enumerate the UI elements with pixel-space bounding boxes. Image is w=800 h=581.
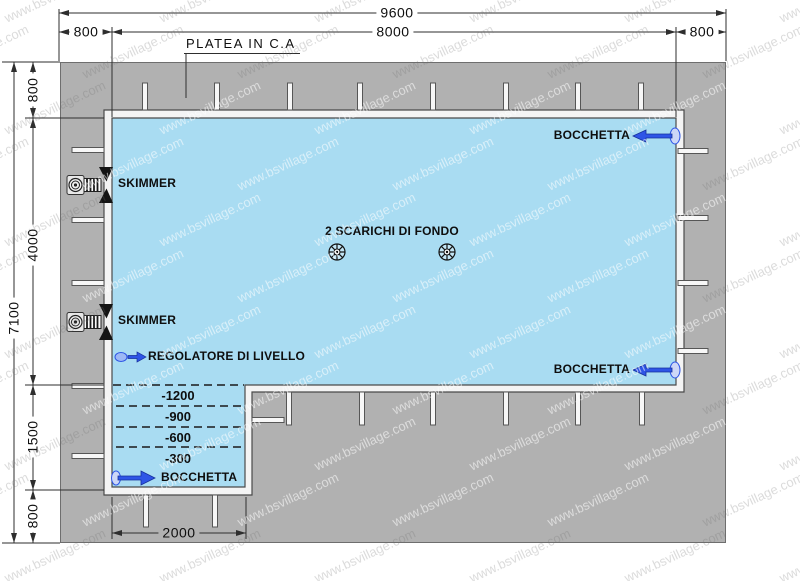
dim-total-width: 9600 xyxy=(376,5,417,20)
dim-steps-zone-height: 1500 xyxy=(25,416,40,457)
level-regulator-icon xyxy=(115,353,127,362)
dim-margin-top: 800 xyxy=(25,74,40,107)
skimmer-label-2: SKIMMER xyxy=(118,314,176,327)
bocchetta-label-top-right: BOCCHETTA xyxy=(554,129,630,142)
level-regulator-label: REGOLATORE DI LIVELLO xyxy=(148,350,305,363)
depth-label-300: -300 xyxy=(165,452,191,466)
dim-pool-length: 8000 xyxy=(372,24,413,39)
skimmer-label-1: SKIMMER xyxy=(118,177,176,190)
pool-plan-drawing: PLATEA IN C.A 9600 8000 800 800 2000 800… xyxy=(0,0,800,581)
bocchetta-label-steps: BOCCHETTA xyxy=(161,471,237,484)
dim-pool-width: 4000 xyxy=(25,224,40,265)
dim-margin-right: 800 xyxy=(686,24,719,39)
bottom-drain-icon xyxy=(439,244,455,260)
dim-steps-width: 2000 xyxy=(158,525,199,540)
depth-label-1200: -1200 xyxy=(161,389,194,403)
platea-label: PLATEA IN C.A xyxy=(184,37,300,54)
dim-total-height: 7100 xyxy=(6,297,21,338)
dim-margin-bottom: 800 xyxy=(25,500,40,533)
dim-margin-left: 800 xyxy=(70,24,103,39)
bottom-drains-label: 2 SCARICHI DI FONDO xyxy=(325,225,459,238)
bocchetta-label-bottom-right: BOCCHETTA xyxy=(554,363,630,376)
depth-label-900: -900 xyxy=(165,410,191,424)
bottom-drain-icon xyxy=(329,244,345,260)
depth-label-600: -600 xyxy=(165,431,191,445)
plan-graphics xyxy=(0,0,800,581)
